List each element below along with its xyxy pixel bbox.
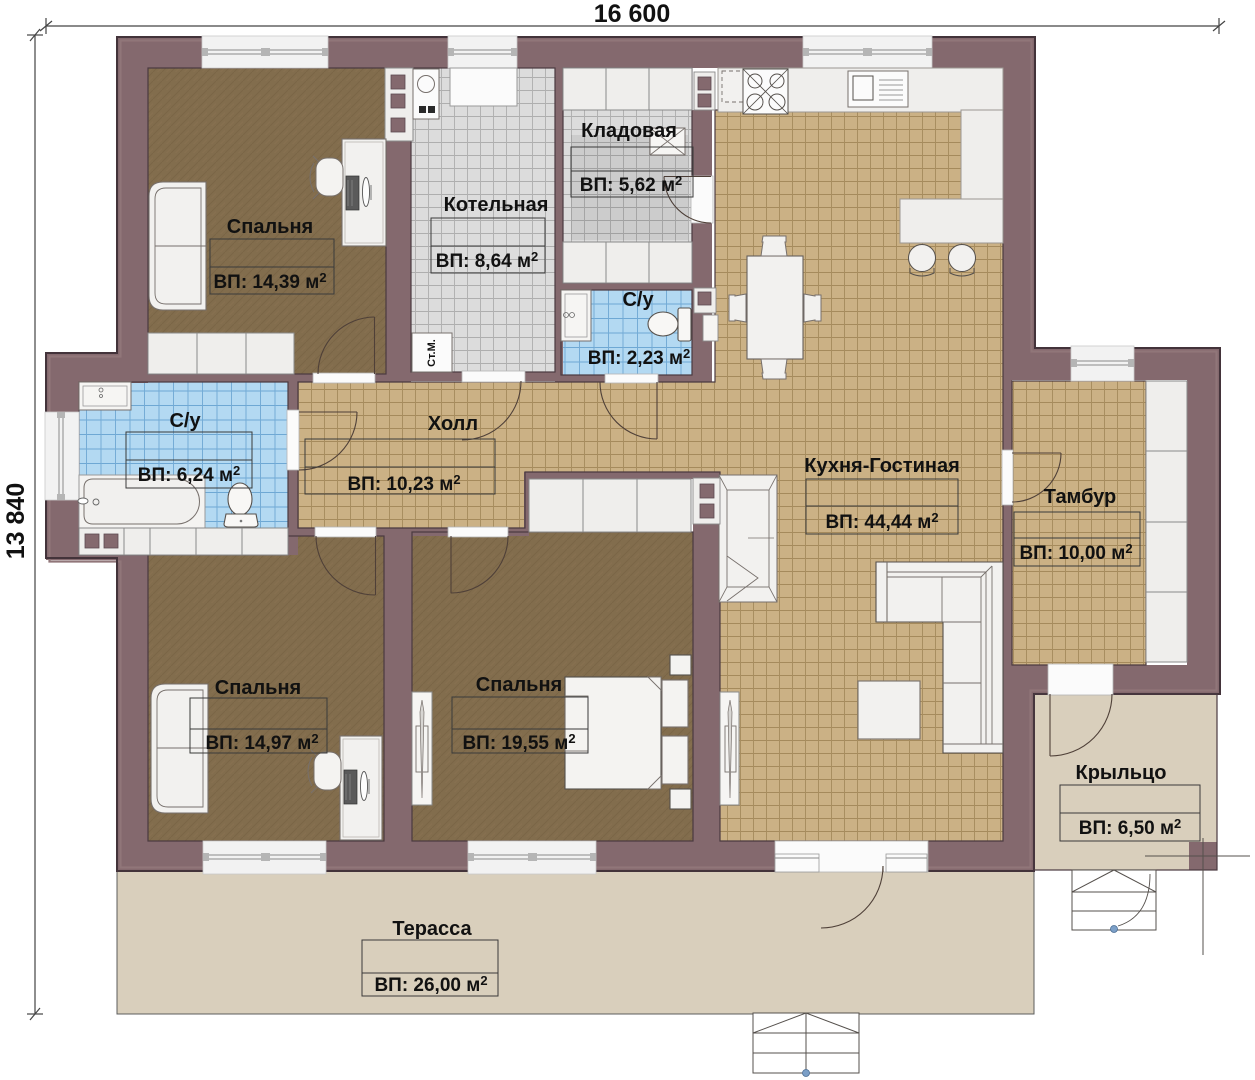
- svg-text:ВП: 26,00 м2: ВП: 26,00 м2: [374, 973, 487, 996]
- svg-text:Кухня-Гостиная: Кухня-Гостиная: [804, 455, 960, 477]
- svg-text:ВП: 6,50 м2: ВП: 6,50 м2: [1079, 816, 1182, 839]
- svg-text:Кладовая: Кладовая: [581, 120, 677, 142]
- svg-text:Спальня: Спальня: [227, 216, 313, 238]
- svg-text:ВП: 44,44 м2: ВП: 44,44 м2: [825, 510, 938, 533]
- svg-text:ВП: 14,97 м2: ВП: 14,97 м2: [205, 731, 318, 754]
- svg-text:С/у: С/у: [622, 289, 654, 311]
- svg-text:ВП: 10,23 м2: ВП: 10,23 м2: [347, 472, 460, 495]
- svg-text:Крыльцо: Крыльцо: [1075, 762, 1166, 784]
- svg-text:Спальня: Спальня: [476, 674, 562, 696]
- svg-text:16 600: 16 600: [594, 0, 670, 28]
- svg-text:ВП: 19,55 м2: ВП: 19,55 м2: [462, 731, 575, 754]
- svg-text:Холл: Холл: [428, 413, 478, 435]
- svg-text:ВП: 14,39 м2: ВП: 14,39 м2: [213, 270, 326, 293]
- svg-text:ВП: 10,00 м2: ВП: 10,00 м2: [1019, 541, 1132, 564]
- svg-text:Тамбур: Тамбур: [1044, 486, 1117, 508]
- svg-text:ВП: 2,23 м2: ВП: 2,23 м2: [588, 346, 691, 369]
- svg-text:13 840: 13 840: [2, 483, 30, 559]
- svg-text:ВП: 6,24 м2: ВП: 6,24 м2: [138, 463, 241, 486]
- svg-text:Котельная: Котельная: [444, 194, 549, 216]
- svg-text:С/у: С/у: [169, 410, 201, 432]
- svg-text:ВП: 5,62 м2: ВП: 5,62 м2: [580, 173, 683, 196]
- svg-text:Ст.М.: Ст.М.: [426, 339, 438, 367]
- svg-text:Спальня: Спальня: [215, 677, 301, 699]
- svg-text:ВП: 8,64 м2: ВП: 8,64 м2: [436, 249, 539, 272]
- svg-text:Терасса: Терасса: [392, 918, 472, 940]
